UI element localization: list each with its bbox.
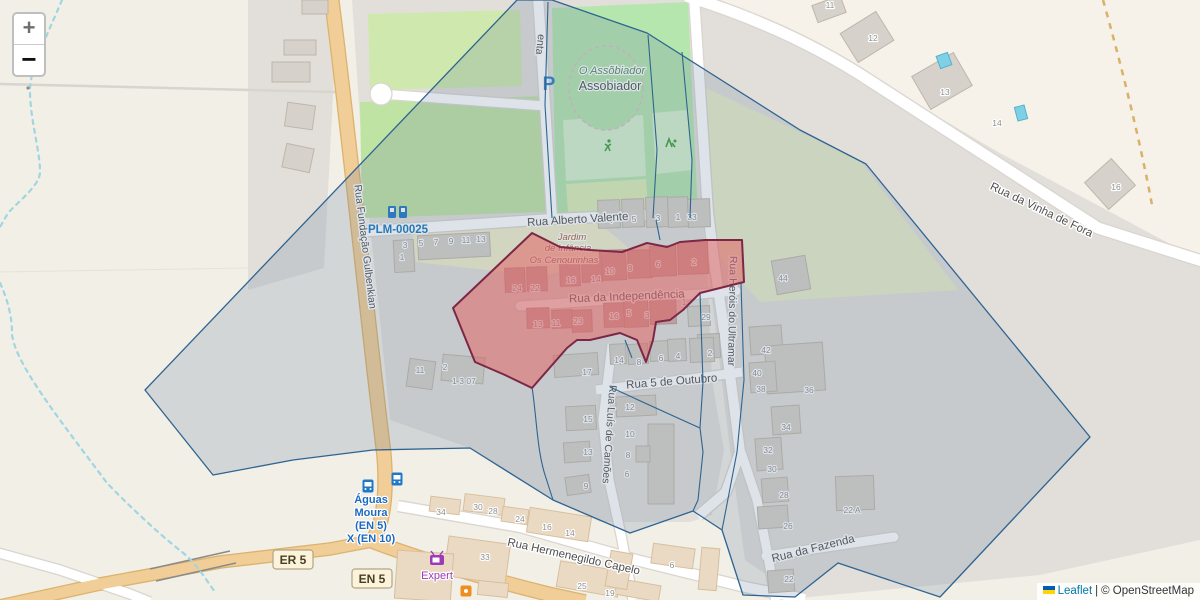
map-container[interactable]: P753133135791113242216141086213112316531…	[0, 0, 1200, 600]
building	[477, 580, 508, 597]
poi-label: X (EN 10)	[347, 533, 396, 545]
bus-stop-icon	[394, 481, 396, 483]
bus-stop-icon	[399, 481, 401, 483]
building	[284, 102, 315, 130]
house-number-label: 33	[480, 552, 490, 562]
openstreetmap-link[interactable]: © OpenStreetMap	[1101, 585, 1194, 597]
building	[284, 40, 316, 55]
leaflet-link[interactable]: Leaflet	[1058, 585, 1093, 597]
bus-stop-icon	[365, 482, 372, 487]
house-number-label: 19	[605, 588, 615, 598]
bus-stop-icon	[365, 488, 367, 490]
map-dot	[26, 86, 29, 89]
zoom-control: + −	[12, 12, 46, 77]
house-number-label: 14	[565, 528, 575, 538]
poi-label: (EN 5)	[355, 520, 387, 532]
building	[698, 547, 720, 590]
house-number-label: 16	[542, 522, 552, 532]
house-number-label: 16	[1111, 182, 1121, 192]
ukraine-flag-icon	[1043, 586, 1055, 594]
bus-stop-icon	[394, 475, 401, 480]
tv-shop-icon	[433, 558, 440, 563]
poi-label: Expert	[421, 570, 453, 582]
attribution-bar: Leaflet|© OpenStreetMap	[1037, 583, 1200, 600]
house-number-label: 12	[868, 33, 878, 43]
poi-label: Moura	[355, 507, 389, 519]
house-number-label: 14	[992, 118, 1002, 128]
poi-label: Águas	[354, 493, 388, 506]
building	[282, 143, 314, 172]
building	[302, 0, 328, 14]
map-svg: P753133135791113242216141086213112316531…	[0, 0, 1200, 600]
house-number-label: 11	[826, 0, 835, 10]
house-number-label: 28	[488, 506, 498, 516]
road-shield-label: ER 5	[280, 553, 307, 567]
bus-stop-icon	[370, 488, 372, 490]
zoom-in-button[interactable]: +	[14, 14, 44, 45]
road-shield-label: EN 5	[359, 572, 386, 586]
house-number-label: 6	[670, 560, 675, 570]
food-icon	[464, 589, 468, 593]
road-turning-circle	[370, 83, 392, 105]
building	[272, 62, 310, 82]
house-number-label: 25	[577, 581, 587, 591]
house-number-label: 13	[940, 87, 950, 97]
attribution-separator: |	[1095, 585, 1098, 597]
house-number-label: 34	[436, 507, 446, 517]
zoom-out-button[interactable]: −	[14, 45, 44, 75]
house-number-label: 30	[473, 502, 483, 512]
house-number-label: 24	[515, 514, 525, 524]
